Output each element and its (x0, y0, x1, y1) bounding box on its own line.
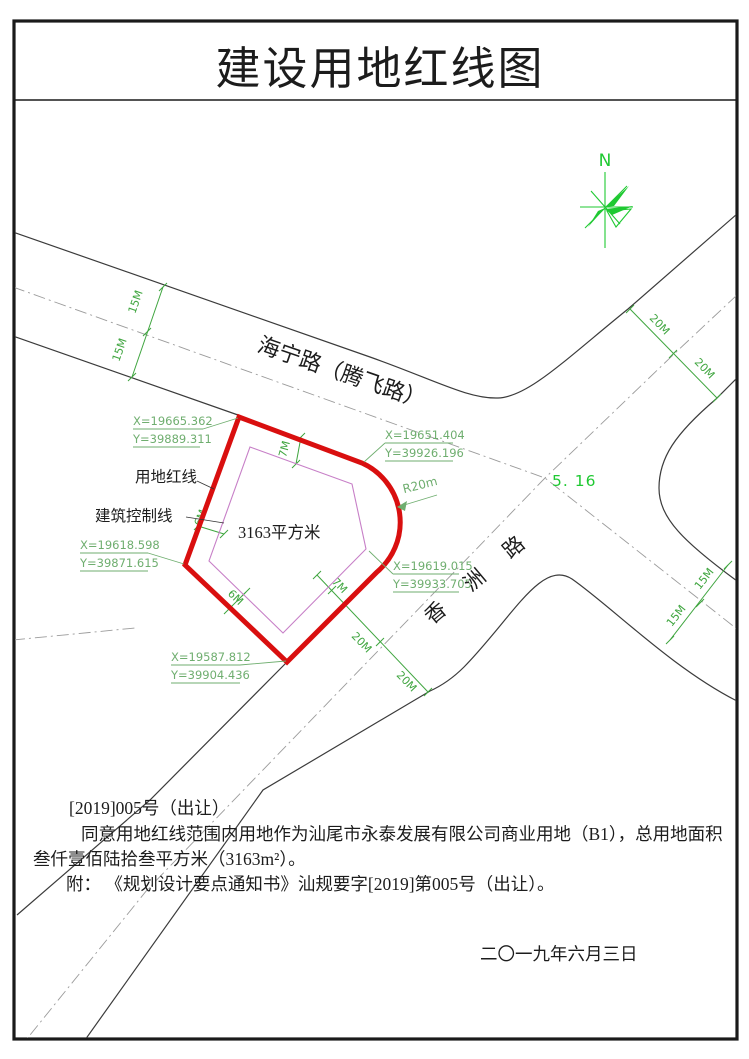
dim-label-setback-top: 7M (276, 439, 293, 458)
coord-y: Y=39889.311 (132, 432, 212, 446)
dim-label: 20M (692, 356, 718, 382)
note-line-1: [2019]005号（出让） (69, 798, 229, 818)
dim-label: 15M (664, 603, 689, 630)
dim-label-setback-bottom-right: 7M (329, 575, 350, 596)
radius-label: R20m (401, 474, 439, 496)
east-corner-curve (659, 378, 737, 581)
road-network (13, 214, 737, 1040)
drawing-sheet: 建设用地红线图 N (0, 0, 749, 1059)
red-line-label: 用地红线 (135, 468, 197, 486)
drawing-title: 建设用地红线图 (215, 44, 544, 94)
dim-label: 20M (349, 630, 375, 656)
coord-y: Y=39926.196 (384, 446, 464, 460)
coord-x: X=19665.362 (133, 414, 213, 428)
xiangzhou-road-centerline (26, 295, 737, 1040)
dim-label: 15M (110, 337, 130, 363)
haining-road-label: 海宁路（腾飞路） (255, 332, 430, 413)
dim-label: 20M (647, 312, 673, 338)
spot-elevation-label: 5. 16 (552, 472, 596, 490)
coord-y: Y=39904.436 (170, 668, 250, 682)
coord-x: X=19587.812 (171, 650, 251, 664)
dim-label: 15M (692, 566, 717, 593)
north-label: N (599, 151, 612, 171)
approval-notes: [2019]005号（出让） 同意用地红线范围内用地作为汕尾市永泰发展有限公司商… (33, 798, 723, 964)
note-line-3: 叁仟壹佰陆拾叁平方米（3163m²）。 (33, 849, 306, 869)
note-line-4: 附： 《规划设计要点通知书》汕规要字[2019]第005号（出让）。 (66, 874, 555, 894)
coord-x: X=19651.404 (385, 428, 465, 442)
coord-x: X=19619.015 (393, 559, 473, 573)
north-arrow: N (580, 151, 633, 248)
coord-y: Y=39871.615 (79, 556, 159, 570)
coord-x: X=19618.598 (80, 538, 160, 552)
dim-label: 20M (394, 669, 420, 695)
red-line-label-leader (197, 481, 214, 489)
date-label: 二〇一九年六月三日 (480, 944, 638, 964)
dim-line-xiangzhou-sw (317, 575, 428, 692)
note-line-2: 同意用地红线范围内用地作为汕尾市永泰发展有限公司商业用地（B1），总用地面积 (81, 824, 723, 844)
control-line-label: 建筑控制线 (95, 507, 173, 525)
leader-radius (401, 495, 437, 506)
dim-label: 15M (126, 289, 146, 315)
west-boundary-centerline (13, 628, 135, 640)
site-area-label: 3163平方米 (238, 523, 321, 542)
site-labels: 用地红线 建筑控制线 3163平方米 海宁路（腾飞路） 香洲路 (95, 332, 552, 629)
